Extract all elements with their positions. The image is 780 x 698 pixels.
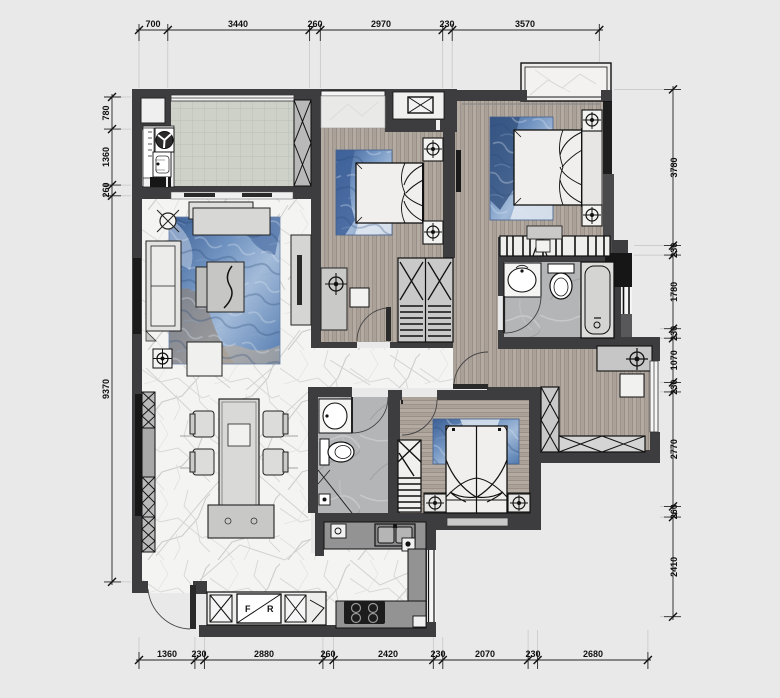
- svg-text:230: 230: [669, 243, 679, 258]
- svg-text:780: 780: [101, 105, 111, 120]
- svg-text:2070: 2070: [475, 649, 495, 659]
- svg-text:1360: 1360: [157, 649, 177, 659]
- svg-text:1780: 1780: [669, 282, 679, 302]
- svg-text:260: 260: [101, 182, 111, 197]
- svg-text:700: 700: [145, 19, 160, 29]
- svg-text:1070: 1070: [669, 350, 679, 370]
- svg-text:3780: 3780: [669, 157, 679, 177]
- svg-text:R: R: [267, 604, 274, 614]
- svg-text:230: 230: [430, 649, 445, 659]
- svg-text:230: 230: [525, 649, 540, 659]
- svg-text:2770: 2770: [669, 439, 679, 459]
- svg-text:2970: 2970: [371, 19, 391, 29]
- svg-text:230: 230: [669, 380, 679, 395]
- svg-text:3440: 3440: [228, 19, 248, 29]
- svg-text:1360: 1360: [101, 147, 111, 167]
- svg-text:2420: 2420: [378, 649, 398, 659]
- svg-text:230: 230: [669, 326, 679, 341]
- svg-text:260: 260: [669, 504, 679, 519]
- svg-text:3570: 3570: [515, 19, 535, 29]
- svg-text:230: 230: [191, 649, 206, 659]
- svg-text:2410: 2410: [669, 557, 679, 577]
- svg-text:260: 260: [320, 649, 335, 659]
- svg-text:230: 230: [439, 19, 454, 29]
- svg-text:9370: 9370: [101, 379, 111, 399]
- svg-text:F: F: [245, 604, 251, 614]
- svg-text:260: 260: [307, 19, 322, 29]
- svg-text:2680: 2680: [583, 649, 603, 659]
- svg-text:2880: 2880: [254, 649, 274, 659]
